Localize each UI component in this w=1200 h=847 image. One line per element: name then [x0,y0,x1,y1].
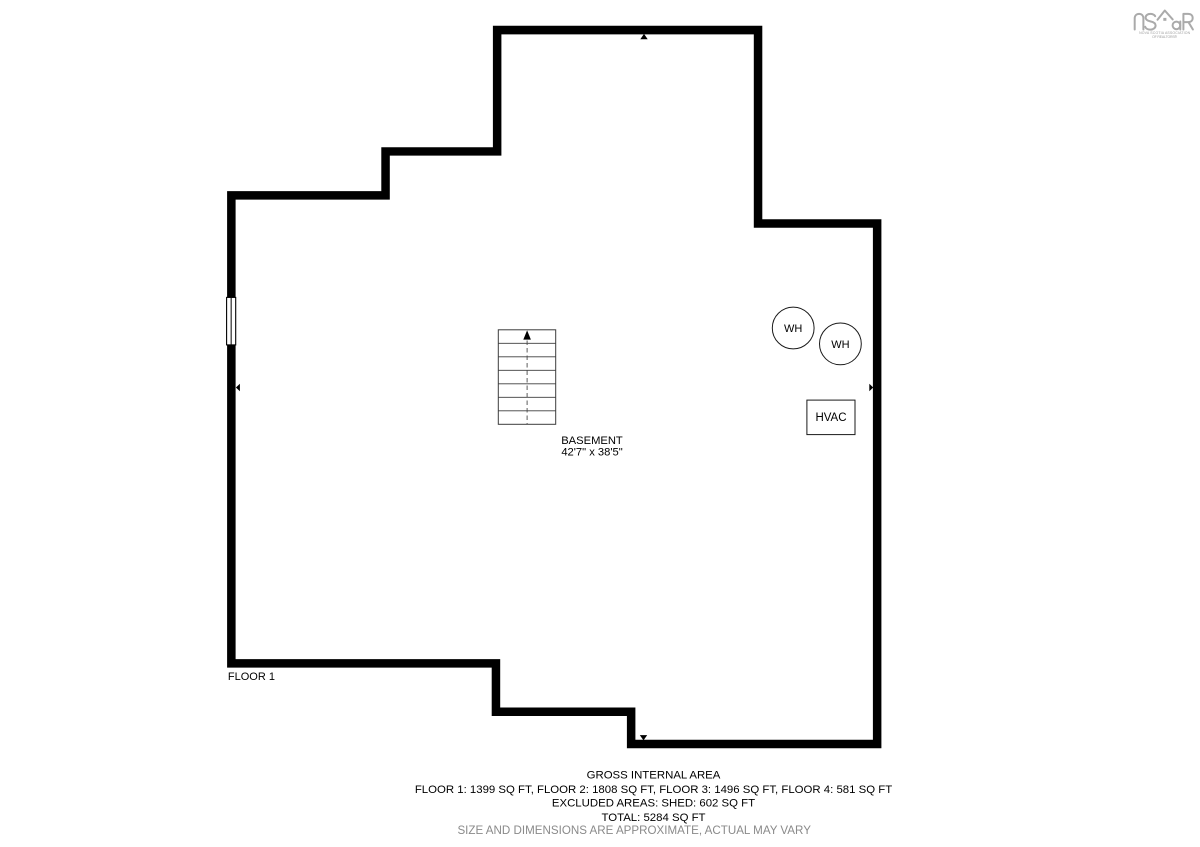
svg-text:TOTAL: 5284 SQ FT: TOTAL: 5284 SQ FT [601,812,705,824]
svg-text:HVAC: HVAC [815,412,846,424]
svg-text:42'7" x 38'5": 42'7" x 38'5" [561,446,622,458]
svg-text:EXCLUDED AREAS: SHED: 602 SQ F: EXCLUDED AREAS: SHED: 602 SQ FT [552,797,755,809]
svg-text:GROSS INTERNAL AREA: GROSS INTERNAL AREA [587,769,721,781]
svg-text:FLOOR 1: 1399 SQ FT, FLOOR 2:: FLOOR 1: 1399 SQ FT, FLOOR 2: 1808 SQ FT… [415,784,892,796]
svg-text:WH: WH [784,323,802,335]
svg-text:FLOOR 1: FLOOR 1 [228,671,275,683]
svg-text:SIZE AND DIMENSIONS ARE APPROX: SIZE AND DIMENSIONS ARE APPROXIMATE, ACT… [457,824,811,837]
svg-text:OF REALTORS®: OF REALTORS® [1152,35,1177,39]
svg-text:WH: WH [831,339,849,351]
svg-text:BASEMENT: BASEMENT [561,435,623,447]
